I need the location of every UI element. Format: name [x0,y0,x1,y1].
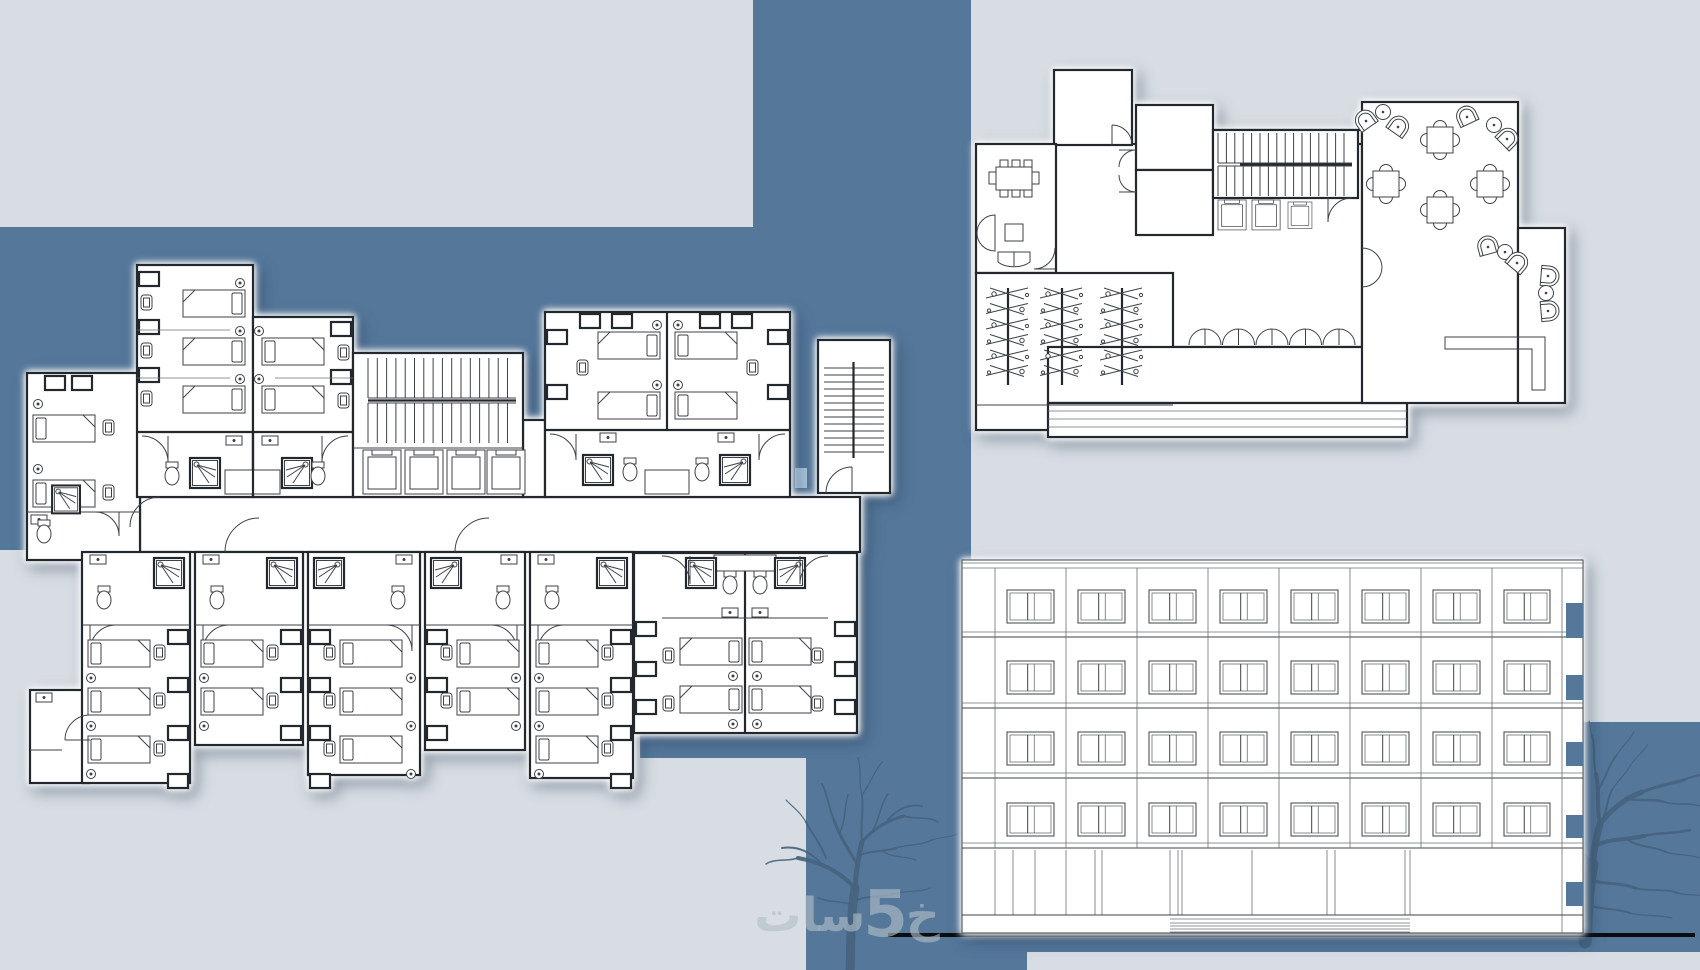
guest-room-unit [82,552,190,788]
lower-guest-room-units [82,552,633,788]
balcony-recess [1566,882,1583,906]
balcony-recess [1566,675,1583,700]
khamsat-watermark: خ5سات [736,878,958,942]
service-room-1 [1136,105,1213,170]
elevation-facade [962,560,1583,933]
office-room [1054,70,1132,145]
corridor [140,497,860,552]
accent-patch [795,468,807,488]
service-room-2 [1136,170,1213,235]
balcony-recess [1566,815,1583,838]
guest-room-unit [530,552,633,788]
architectural-scene [0,0,1700,970]
elevation-ground-line [888,933,1695,937]
guest-room-unit [308,552,420,788]
watermark-digit: 5 [863,883,908,947]
front-elevation [962,560,1583,933]
presentation-board: خ5سات [0,0,1700,970]
guest-room-unit [425,552,525,750]
balcony-recess [1566,603,1583,638]
watermark-suffix: سات [754,888,865,943]
watermark-prefix: خ [906,888,940,943]
guest-room-unit [195,552,303,745]
balcony-recess [1566,742,1583,766]
terrace-steps [1048,403,1407,437]
